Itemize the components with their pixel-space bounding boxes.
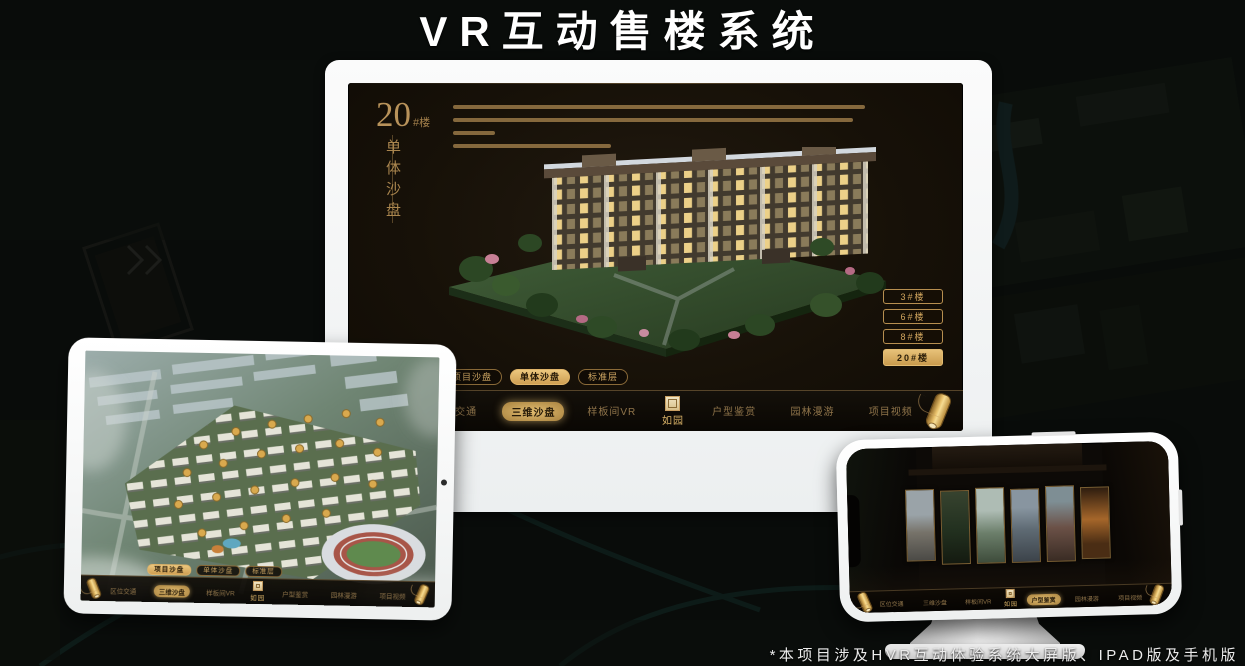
app-logo: 如园 [651,396,695,427]
subtab-single-sandbox[interactable]: 单体沙盘 [196,565,240,577]
floor-button[interactable]: 3#楼 [883,289,943,304]
nav-item-floorplan[interactable]: 户型鉴赏 [1022,588,1066,607]
subtab-standard-floor[interactable]: 标准层 [578,369,628,385]
nav-item-garden-tour[interactable]: 园林漫游 [1065,587,1109,606]
gallery-panel[interactable] [905,489,936,562]
gallery-panel[interactable] [940,490,971,565]
floor-button-group: 3#楼 6#楼 8#楼 20#楼 [883,289,943,371]
nav-item-garden-tour[interactable]: 园林漫游 [773,402,851,420]
nav-item-location[interactable]: 区位交通 [870,592,914,611]
seal-icon [1006,589,1015,598]
nav-item-showroom-vr[interactable]: 样板间VR [196,581,245,600]
intro-line [453,131,495,135]
seal-icon [253,581,263,591]
block-heading: 20#楼 单体沙盘 [376,97,430,249]
floor-button-active[interactable]: 20#楼 [883,349,943,366]
intro-line [453,118,853,122]
intro-line [453,105,865,109]
gallery-panel[interactable] [1080,486,1111,559]
tablet-navbar: 区位交通 三维沙盘 样板间VR 如园 户型鉴赏 园林漫游 项目视频 [81,575,435,608]
nav-item-garden-tour[interactable]: 园林漫游 [319,584,368,603]
block-number-suffix: #楼 [413,117,430,129]
nav-item-location[interactable]: 区位交通 [99,579,148,598]
subtab-standard-floor[interactable]: 标准层 [245,566,282,578]
building-model-3d[interactable] [434,147,906,361]
nav-item-3d-sandbox[interactable]: 三维沙盘 [913,591,957,610]
vertical-english-caption [392,135,393,223]
gallery-panel[interactable] [975,487,1006,564]
gallery-panel[interactable] [1010,488,1041,563]
interior-roof-beam [932,443,1083,471]
scroll-handle-icon[interactable] [413,583,430,606]
gallery-panel[interactable] [1045,485,1076,562]
page-title: VR互动售楼系统 [0,0,1245,56]
floor-button[interactable]: 6#楼 [883,309,943,324]
tablet-screen: 项目沙盘 单体沙盘 标准层 区位交通 三维沙盘 样板间VR 如园 户型鉴赏 园林… [81,351,440,608]
tablet-camera-dot [441,479,447,485]
phone-notch [847,495,861,567]
nav-item-showroom-vr[interactable]: 样板间VR [573,402,651,420]
scroll-handle-icon[interactable] [924,391,953,431]
subtab-single-sandbox[interactable]: 单体沙盘 [510,369,570,385]
seal-icon [665,396,680,411]
app-logo: 如园 [245,581,271,602]
nav-item-3d-sandbox[interactable]: 三维沙盘 [494,402,572,421]
scroll-handle-icon[interactable] [1148,583,1165,606]
block-number: 20 [376,95,411,134]
nav-item-floorplan[interactable]: 户型鉴赏 [695,402,773,420]
phone-screen: 区位交通 三维沙盘 样板间VR 如园 户型鉴赏 园林漫游 项目视频 [846,441,1172,613]
gallery-panels [905,484,1111,565]
nav-item-floorplan[interactable]: 户型鉴赏 [271,583,320,602]
tablet-device: 项目沙盘 单体沙盘 标准层 区位交通 三维沙盘 样板间VR 如园 户型鉴赏 园林… [63,337,456,620]
floor-button[interactable]: 8#楼 [883,329,943,344]
app-logo: 如园 [1000,589,1022,609]
nav-item-3d-sandbox[interactable]: 三维沙盘 [147,580,196,599]
subtab-project-sandbox[interactable]: 项目沙盘 [147,564,191,576]
subtab-group: 项目沙盘 单体沙盘 标准层 [442,369,628,385]
nav-item-showroom-vr[interactable]: 样板间VR [956,590,1000,609]
phone-device: 区位交通 三维沙盘 样板间VR 如园 户型鉴赏 园林漫游 项目视频 [836,432,1183,623]
footnote-caption: *本项目涉及HVR互动体验系统大屏版、IPAD版及手机版 [770,644,1239,665]
